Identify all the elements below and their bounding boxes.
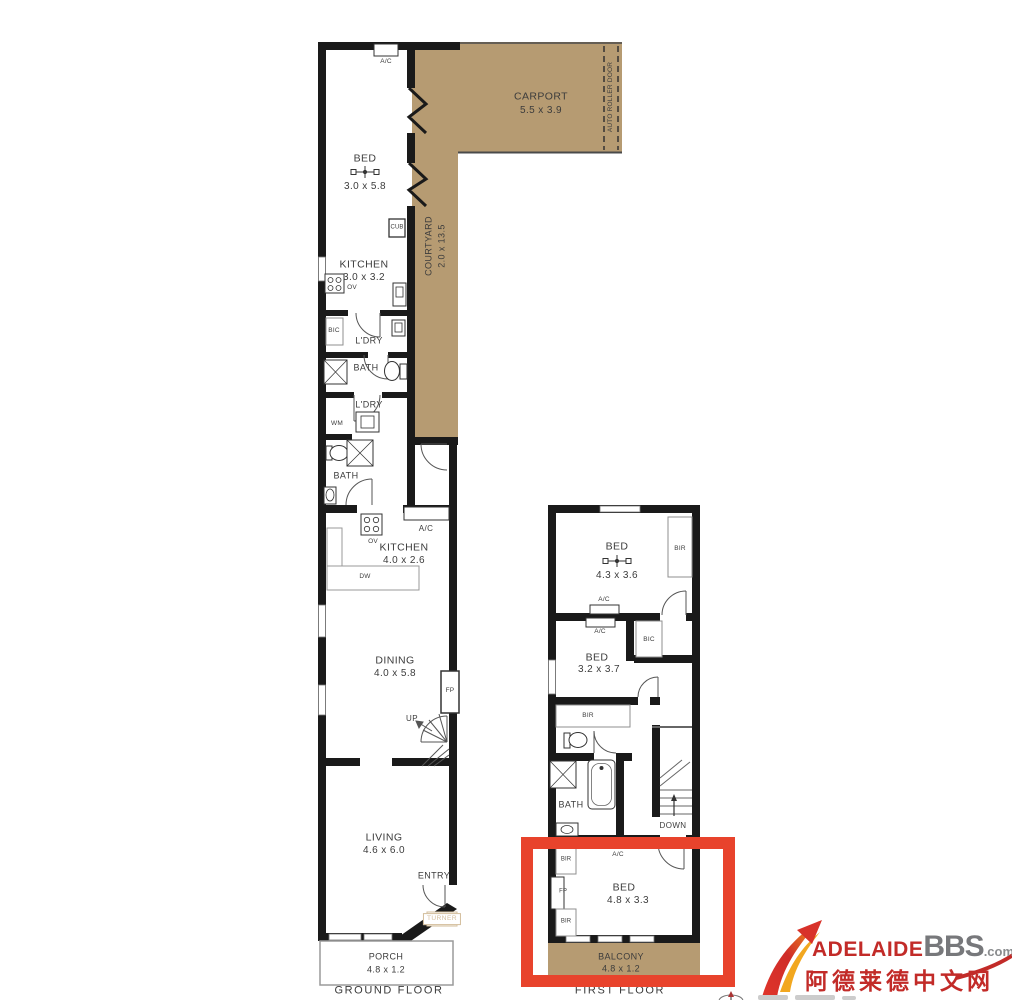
label-cub: CUB <box>391 224 404 231</box>
room-dims-carport: 5.5 x 3.9 <box>520 105 562 117</box>
room-label-kitchen-main: KITCHEN <box>380 542 429 555</box>
room-dims-bed2-ff: 3.2 x 3.7 <box>578 664 620 676</box>
label-bic-ff: BIC <box>643 636 654 644</box>
room-label-kitchen-rear: KITCHEN <box>340 259 389 272</box>
brand-tagline-text: 阿德莱德中文网 <box>805 962 994 996</box>
label-ac-lower-ff: A/C <box>594 628 605 636</box>
brand-wordmark: ADELAIDEBBS.com <box>812 934 1012 962</box>
label-ac-kitchen: A/C <box>419 524 434 534</box>
label-ac-bed-gf: A/C <box>380 58 391 66</box>
room-dims-courtyard: 2.0 x 13.5 <box>437 224 448 268</box>
room-label-courtyard: COURTYARD <box>424 216 435 276</box>
brand-tld-text: .com <box>984 944 1012 959</box>
room-dims-dining: 4.0 x 5.8 <box>374 668 416 680</box>
label-ov-main: OV <box>368 538 378 546</box>
label-bir-rear-ff: BIR <box>674 545 685 553</box>
room-dims-living: 4.6 x 6.0 <box>363 845 405 857</box>
label-wm: WM <box>331 420 343 428</box>
room-label-bed-gf: BED <box>354 153 377 166</box>
room-dims-kitchen-main: 4.0 x 2.6 <box>383 555 425 567</box>
floorplan-page: A/C BED 3.0 x 5.8 CARPORT 5.5 x 3.9 AUTO… <box>0 0 1012 1000</box>
compass-icon <box>719 991 743 1000</box>
label-fp-gf: FP <box>446 687 455 695</box>
label-down: DOWN <box>660 821 687 831</box>
room-dims-porch: 4.8 x 1.2 <box>367 965 405 976</box>
label-ov-rear: OV <box>347 284 357 292</box>
room-label-living: LIVING <box>366 832 403 845</box>
room-label-bed1-ff: BED <box>606 541 629 554</box>
label-bir-mid-ff: BIR <box>582 712 593 720</box>
label-ac-upper-ff: A/C <box>598 596 609 604</box>
room-dims-bed1-ff: 4.3 x 3.6 <box>596 570 638 582</box>
ground-floor-title: GROUND FLOOR <box>334 984 443 997</box>
brand-name-text: ADELAIDE <box>812 938 923 962</box>
room-label-bed2-ff: BED <box>586 652 609 665</box>
floorplan-linework <box>0 0 1012 1000</box>
room-dims-bed-gf: 3.0 x 5.8 <box>344 181 386 193</box>
room-label-ldry-rear: L'DRY <box>355 336 383 347</box>
label-turner: TURNER <box>423 913 461 925</box>
room-label-porch: PORCH <box>369 952 404 963</box>
label-up: UP <box>406 714 418 724</box>
room-label-bath-rear: BATH <box>354 363 379 374</box>
highlight-box <box>521 837 735 987</box>
room-label-bath-mid: BATH <box>334 471 359 482</box>
label-dw: DW <box>359 573 370 581</box>
label-bic-gf: BIC <box>328 327 339 335</box>
room-dims-kitchen-rear: 3.0 x 3.2 <box>343 272 385 284</box>
porch-outline <box>320 941 453 985</box>
room-label-bath-ff: BATH <box>559 800 584 811</box>
room-label-carport: CARPORT <box>514 91 568 104</box>
room-label-dining: DINING <box>375 655 414 668</box>
brand-suffix-text: BBS <box>923 934 983 960</box>
room-label-ldry-mid: L'DRY <box>355 400 383 411</box>
label-auto-roller-door: AUTO ROLLER DOOR <box>607 62 615 132</box>
label-entry: ENTRY <box>418 871 450 882</box>
